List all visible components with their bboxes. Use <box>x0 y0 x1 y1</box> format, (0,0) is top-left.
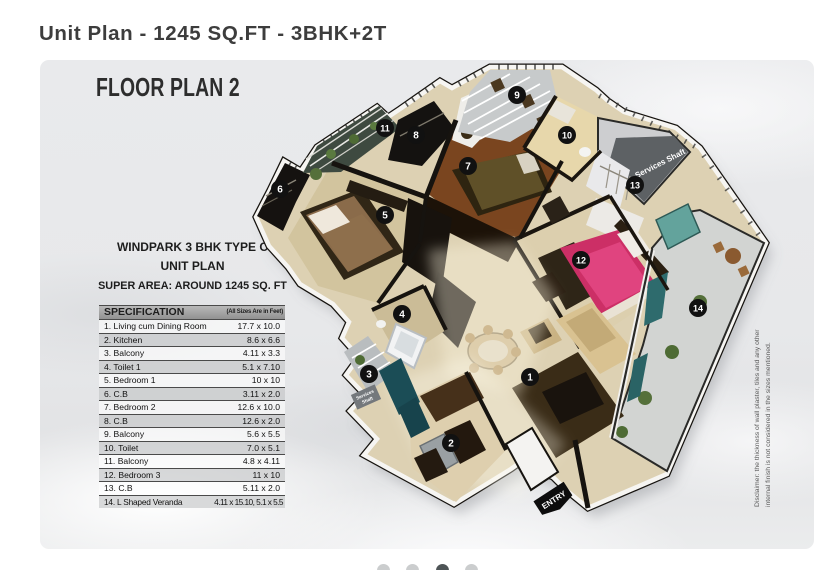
svg-text:9: 9 <box>514 91 520 102</box>
svg-text:6: 6 <box>277 185 283 196</box>
svg-text:14: 14 <box>693 304 703 314</box>
svg-text:1: 1 <box>527 373 533 384</box>
svg-text:7: 7 <box>465 162 471 173</box>
svg-text:13: 13 <box>630 181 640 191</box>
svg-text:3: 3 <box>366 370 372 381</box>
svg-text:11: 11 <box>380 124 390 134</box>
svg-text:4: 4 <box>399 310 405 321</box>
svg-text:8: 8 <box>413 131 419 142</box>
svg-text:10: 10 <box>562 131 572 141</box>
svg-text:2: 2 <box>448 439 454 450</box>
svg-text:5: 5 <box>382 211 388 222</box>
svg-text:12: 12 <box>576 256 586 266</box>
